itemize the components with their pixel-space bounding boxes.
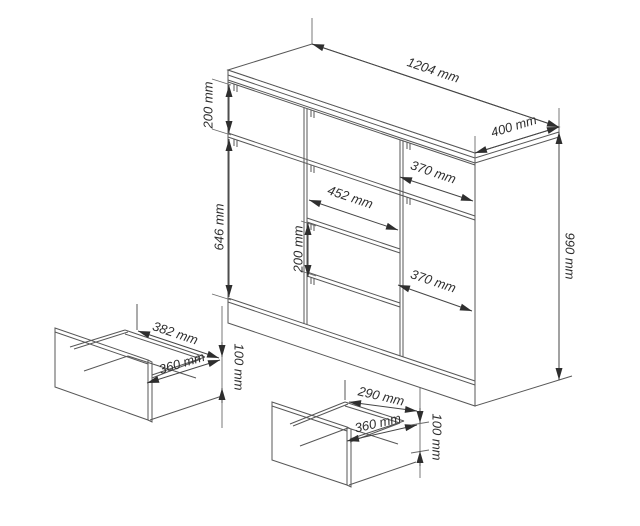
dim-label-door-height: 646 mm xyxy=(211,203,226,250)
left-drawer-front-panel xyxy=(55,328,148,420)
dim-top-drawer-row-height: 200 mm xyxy=(200,79,231,135)
diagram-svg: 1204 mm 400 mm 990 mm 200 mm 646 mm 370 … xyxy=(0,0,640,526)
left-drawer-detail: 382 mm 360 mm 100 mm xyxy=(55,304,247,428)
dim-cabinet-height: 990 mm xyxy=(559,132,578,380)
cabinet xyxy=(228,44,572,406)
dim-label-middle-drawer-height: 200 mm xyxy=(290,225,305,273)
bottom-drawer-detail: 290 mm 360 mm 100 mm xyxy=(272,380,445,487)
furniture-dimension-diagram: 1204 mm 400 mm 990 mm 200 mm 646 mm 370 … xyxy=(0,0,640,526)
dim-label-cabinet-height: 990 mm xyxy=(563,233,578,280)
dim-label-top-drawer-row-height: 200 mm xyxy=(200,81,215,129)
dim-bottom-drawer-height: 100 mm xyxy=(411,388,445,478)
dim-label-left-drawer-height: 100 mm xyxy=(232,344,247,391)
bottom-drawer-front-panel xyxy=(272,402,347,485)
dim-left-drawer-depth: 360 mm xyxy=(147,349,220,383)
cabinet-side-face xyxy=(475,127,559,406)
dim-label-bottom-drawer-height: 100 mm xyxy=(430,414,445,461)
dim-label-bottom-drawer-width: 290 mm xyxy=(356,383,406,408)
